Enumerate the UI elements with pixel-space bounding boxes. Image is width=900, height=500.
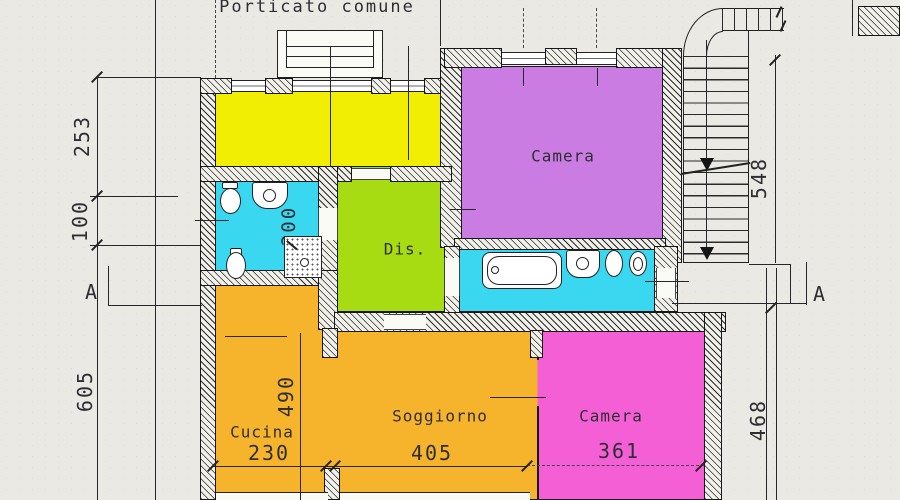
window-sill-bottom (216, 492, 328, 500)
wall-segment (371, 78, 391, 94)
door-opening (656, 268, 676, 298)
room-camera-nord: Camera (460, 66, 664, 244)
wall-corner-block (858, 6, 900, 36)
centerline (490, 397, 546, 398)
window (577, 52, 616, 65)
wall-stub (530, 330, 543, 358)
floor-plan: Camera Dis. Cucina Soggiorno Camera (0, 0, 900, 500)
wall-segment (440, 48, 462, 248)
toilet-fixture (220, 188, 241, 214)
dimension-line-stairs (775, 55, 776, 263)
centerline (523, 68, 524, 86)
reference-line (155, 0, 156, 500)
centerline (645, 281, 689, 282)
wall-segment (265, 78, 293, 94)
staircase-walk-line (706, 40, 707, 254)
door-opening (444, 258, 460, 296)
extension-line (90, 245, 202, 246)
wall-exterior-right (704, 312, 722, 500)
centerline (195, 220, 229, 221)
window (232, 80, 265, 92)
landing-edge (790, 264, 791, 304)
extension-line (97, 77, 201, 78)
dimension-line-bottom-dashed (527, 465, 704, 466)
window (293, 80, 371, 92)
window (502, 52, 545, 65)
door-opening (352, 168, 390, 180)
bidet-fixture (605, 250, 623, 277)
room-camera-sud: Camera (538, 330, 708, 500)
window-sill-bottom (340, 492, 530, 500)
landing-edge (749, 264, 790, 265)
bidet-fixture (226, 252, 246, 279)
dim-361: 361 (598, 439, 640, 463)
staircase-top-run (722, 8, 784, 31)
staircase-flight (683, 56, 749, 263)
extension-line (90, 196, 178, 197)
dim-253: 253 (70, 115, 94, 157)
sink-basin (263, 189, 276, 202)
opening-cucina-soggiorno (328, 358, 340, 470)
dim-490: 490 (274, 375, 298, 417)
dim-100: 100 (68, 200, 92, 242)
staircase-rail (748, 31, 749, 57)
bathtub-drain (491, 266, 499, 274)
toilet-bowl (633, 257, 643, 271)
section-line-left (108, 305, 202, 306)
opening-soggiorno-camera (532, 360, 543, 406)
wall-stub (322, 328, 338, 358)
wall-segment (390, 166, 452, 182)
stair-direction-arrow-icon (700, 247, 714, 260)
room-label: Dis. (384, 240, 427, 259)
dim-468: 468 (746, 399, 770, 441)
centerline-dashed (523, 8, 524, 48)
wall-segment (200, 78, 232, 94)
room-label: Camera (531, 147, 595, 166)
section-line-right (672, 303, 806, 304)
room-label: Cucina (230, 423, 294, 442)
section-line-left (108, 266, 109, 306)
centerline (408, 46, 409, 160)
section-marker-a-right: A (813, 282, 827, 306)
dim-405: 405 (411, 441, 453, 465)
centerline (225, 336, 287, 337)
room-label: Soggiorno (392, 407, 488, 426)
area-title: Porticato comune (219, 0, 415, 17)
shower-drain (300, 258, 309, 267)
reference-line-dashed (215, 0, 216, 78)
centerline (440, 0, 441, 46)
room-label: Camera (579, 407, 643, 426)
centerline (450, 209, 476, 210)
wall-camera-stairs (662, 48, 682, 263)
centerline-dashed (596, 8, 597, 48)
wall-segment (444, 48, 502, 68)
corner-line (852, 0, 853, 36)
wall-exterior-left (200, 78, 216, 500)
dim-548: 548 (747, 157, 771, 199)
section-marker-a-left: A (85, 280, 99, 304)
wall-segment (545, 48, 577, 65)
centerline (597, 68, 598, 86)
sink-basin (576, 257, 589, 270)
dim-230: 230 (248, 441, 290, 465)
centerline (330, 46, 331, 166)
door-opening (384, 314, 426, 330)
dim-605: 605 (73, 370, 97, 412)
room-disimpegno: Dis. (336, 166, 454, 312)
dimension-line-490 (300, 333, 301, 500)
room-soggiorno: Soggiorno (334, 330, 538, 500)
section-line-right (806, 262, 807, 305)
dimension-line-bottom (213, 466, 527, 467)
wall-segment (454, 238, 666, 250)
